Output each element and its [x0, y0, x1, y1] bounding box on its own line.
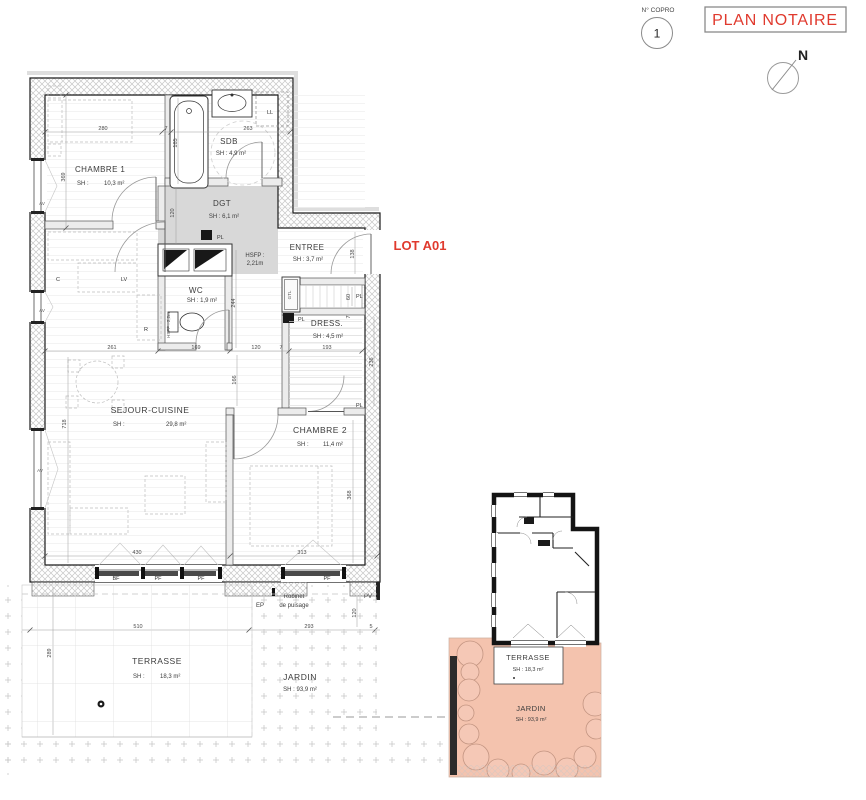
dim-261: 261: [107, 345, 116, 351]
room-label-dgt: DGT: [213, 199, 231, 208]
dim-280: 280: [98, 126, 107, 132]
lot-label: LOT A01: [394, 238, 447, 253]
dim-120b: 120: [251, 345, 260, 351]
dim-7b: 7: [346, 315, 352, 318]
room-area-sdb: SH : 4,9 m²: [216, 151, 246, 157]
label-pl-4: PL: [356, 403, 363, 409]
floor-plan-canvas: 280 7 263 185 369 120 244 138 60 7 236 2…: [0, 0, 866, 800]
keyplan-terrasse-label: TERRASSE: [506, 653, 550, 662]
room-area-terrasse: 18,3 m²: [160, 674, 180, 680]
room-area-jardin: SH : 93,9 m²: [283, 687, 317, 693]
dim-120a: 120: [170, 208, 176, 217]
room-area-sejour: 29,8 m²: [166, 422, 186, 428]
dim-369: 369: [61, 172, 67, 181]
copro-label: N° COPRO: [642, 6, 675, 14]
garden-right: [252, 585, 377, 737]
hsfp-value: 2,21m: [247, 261, 264, 267]
room-label-chambre1: CHAMBRE 1: [75, 165, 125, 174]
dim-263: 263: [243, 126, 252, 132]
room-area-dgt: SH : 6,1 m²: [209, 214, 239, 220]
dim-60: 60: [346, 294, 352, 300]
dim-244: 244: [231, 298, 237, 307]
closet: [300, 285, 362, 308]
label-av-2: AV: [39, 308, 45, 313]
room-label-wc: WC: [189, 286, 203, 295]
keyplan-dot: [513, 677, 515, 679]
room-label-entree: ENTREE: [290, 243, 325, 252]
label-pf-1: PF: [154, 576, 162, 582]
plan-title: PLAN NOTAIRE: [712, 12, 838, 29]
room-label-dress: DRESS.: [311, 319, 343, 328]
room-area-dress: SH : 4,5 m²: [313, 334, 343, 340]
drain-dot-center: [100, 703, 103, 706]
dim-169: 169: [191, 345, 200, 351]
room-sh-sejour: SH :: [113, 422, 125, 428]
room-area-chambre2: 11,4 m²: [323, 442, 343, 448]
entrance-opening: [363, 230, 382, 274]
room-area-chambre1: 10,3 m²: [104, 181, 124, 187]
hsfp-label: HSFP :: [245, 253, 265, 259]
room-label-terrasse: TERRASSE: [132, 656, 182, 666]
copro-number: 1: [654, 27, 661, 41]
label-c: C: [56, 277, 60, 283]
garden-bottom: [0, 737, 447, 772]
label-bf: BF: [112, 576, 120, 582]
dim-368: 368: [347, 490, 353, 499]
label-pf-2: PF: [197, 576, 205, 582]
room-sh-terrasse: SH :: [133, 674, 145, 680]
label-ll: LL: [267, 110, 273, 116]
header: N° COPRO 1 PLAN NOTAIRE N LOT A01: [394, 6, 846, 253]
keyplan-jardin-area: SH : 93,9 m²: [516, 717, 547, 723]
dim-166: 166: [232, 375, 238, 384]
keyplan-duct-1: [538, 540, 550, 546]
key-plan: TERRASSE SH : 18,3 m² JARDIN SH : 93,9 m…: [449, 490, 607, 782]
keyplan-terrasse-area: SH : 18,3 m²: [513, 667, 544, 673]
label-hsfp-wc: HSFP : 2,2m: [166, 312, 171, 338]
north-compass: N: [768, 47, 809, 94]
dim-7a: 7: [164, 126, 167, 132]
dim-7c: 7: [279, 345, 282, 351]
room-label-jardin: JARDIN: [283, 672, 317, 682]
label-gtl: GTL: [287, 290, 292, 299]
keyplan-hedge: [450, 656, 457, 775]
room-sh-chambre1: SH :: [77, 181, 89, 187]
room-label-sdb: SDB: [220, 137, 238, 146]
label-av-1: AV: [39, 201, 45, 206]
label-pl-2: PL: [298, 317, 305, 323]
label-r: R: [144, 327, 148, 333]
label-pl-1: PL: [217, 235, 224, 241]
room-label-chambre2: CHAMBRE 2: [293, 425, 347, 435]
terrace-garden: TERRASSE SH : 18,3 m² JARDIN SH : 93,9 m…: [0, 585, 452, 775]
room-label-sejour: SEJOUR-CUISINE: [111, 405, 190, 415]
room-area-entree: SH : 3,7 m²: [293, 257, 323, 263]
label-pf-3: PF: [323, 576, 331, 582]
north-label: N: [798, 47, 808, 63]
keyplan-duct-2: [524, 517, 534, 524]
room-area-wc: SH : 1,9 m²: [187, 298, 217, 304]
dress-shelves: [289, 315, 362, 408]
label-av-3: AV: [37, 468, 43, 473]
dim-236: 236: [369, 357, 375, 366]
dim-185: 185: [173, 138, 179, 147]
north-compass-circle: [768, 63, 799, 94]
dim-313: 313: [297, 550, 306, 556]
dim-430: 430: [132, 550, 141, 556]
dim-138: 138: [350, 249, 356, 258]
label-pl-3: PL: [356, 294, 363, 300]
dim-193: 193: [322, 345, 331, 351]
label-lv: LV: [121, 277, 128, 283]
room-sh-chambre2: SH :: [297, 442, 309, 448]
dim-718: 718: [62, 419, 68, 428]
keyplan-jardin-label: JARDIN: [516, 704, 546, 713]
